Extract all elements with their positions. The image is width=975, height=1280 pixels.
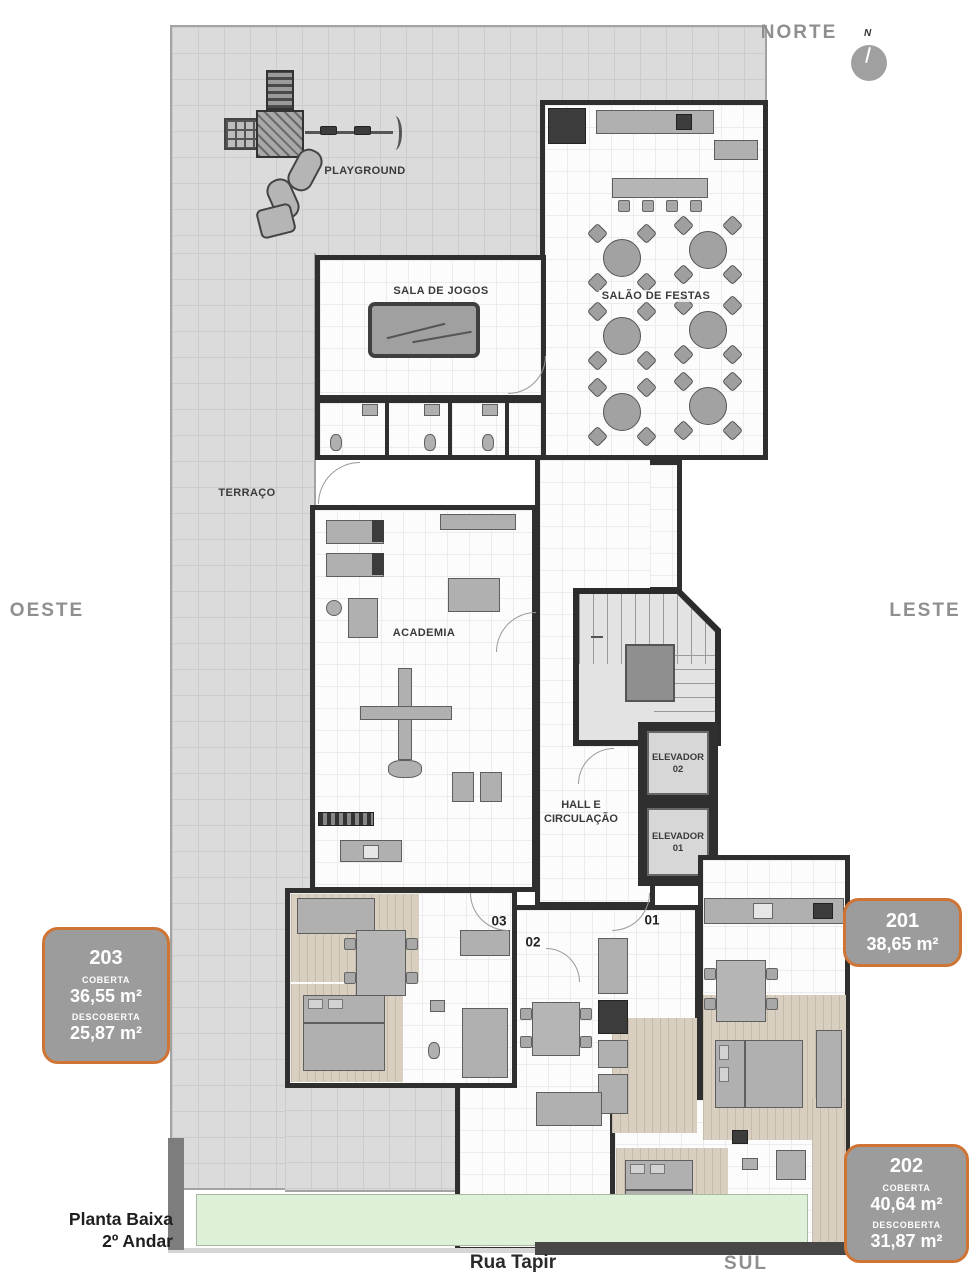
gym-machine	[348, 598, 378, 638]
unit-01-number: 01	[644, 913, 659, 928]
sink	[424, 404, 440, 416]
kitchen-cabinet	[462, 1008, 508, 1078]
weight-rack	[440, 514, 516, 530]
toilet	[482, 434, 494, 451]
dining-table	[356, 930, 406, 996]
badge-203-uncovered-area: 25,87 m²	[45, 1023, 167, 1044]
playground-swing-bar	[305, 131, 393, 134]
hall-label: HALL E CIRCULAÇÃO	[544, 798, 618, 826]
banquet-table	[678, 376, 738, 436]
bed	[303, 995, 385, 1071]
badge-unit-202: 202 COBERTA 40,64 m² DESCOBERTA 31,87 m²	[844, 1144, 969, 1263]
restroom-divider	[385, 400, 389, 456]
kitchen-counter	[704, 898, 844, 924]
elevator-02-label: ELEVADOR 02	[652, 752, 704, 776]
floor-plan-canvas: PLAYGROUND SALÃO DE FESTAS SALA DE JOGOS…	[0, 0, 975, 1280]
unit-02-number: 02	[525, 935, 540, 950]
sink	[362, 404, 378, 416]
badge-202-number: 202	[847, 1155, 966, 1178]
banquet-table	[678, 220, 738, 280]
sofa	[536, 1092, 602, 1126]
sofa	[816, 1030, 842, 1108]
billiard-table	[368, 302, 480, 358]
badge-202-uncovered-label: DESCOBERTA	[847, 1220, 966, 1230]
direction-north: NORTE	[761, 22, 838, 44]
street-name: Rua Tapir	[470, 1252, 556, 1274]
toilet	[330, 434, 342, 451]
badge-203-number: 203	[45, 947, 167, 970]
exercise-mat	[452, 772, 474, 802]
badge-202-uncovered-area: 31,87 m²	[847, 1231, 966, 1252]
bench-press	[448, 578, 500, 612]
gym-label: ACADEMIA	[393, 627, 455, 639]
toilet	[428, 1042, 440, 1059]
compass-n-label: N	[864, 28, 871, 39]
badge-203-uncovered-label: DESCOBERTA	[45, 1012, 167, 1022]
treadmill	[326, 520, 384, 544]
playground-swing-frame	[388, 116, 402, 150]
washing-machine	[732, 1130, 748, 1144]
playground-tower	[266, 70, 294, 110]
badge-201-number: 201	[846, 910, 959, 933]
plan-title-line2: 2º Andar	[18, 1230, 173, 1252]
exercise-mat	[480, 772, 502, 802]
banquet-table	[678, 300, 738, 360]
compass-rose-icon	[851, 45, 887, 81]
corridor-east	[650, 460, 682, 592]
games-room-label: SALA DE JOGOS	[393, 285, 488, 297]
unit-03-number: 03	[491, 914, 506, 929]
direction-east: LESTE	[889, 600, 960, 622]
badge-unit-201: 201 38,65 m²	[843, 898, 962, 967]
direction-south: SUL	[724, 1253, 768, 1275]
apartment-202-hall-floor	[812, 1098, 846, 1250]
party-room-tables	[540, 100, 768, 460]
restroom-divider	[505, 400, 509, 456]
restroom-divider	[448, 400, 452, 456]
kitchen-counter	[598, 938, 628, 994]
sofa	[297, 898, 375, 934]
gym-seat	[388, 760, 422, 778]
terrace-label: TERRAÇO	[218, 487, 275, 499]
kitchen-sink	[598, 1040, 628, 1068]
direction-west: OESTE	[10, 600, 84, 622]
garden-strip	[196, 1194, 808, 1246]
sink	[482, 404, 498, 416]
sink	[742, 1158, 758, 1170]
treadmill	[326, 553, 384, 577]
sink	[430, 1000, 445, 1012]
plan-title: Planta Baixa 2º Andar	[18, 1208, 173, 1252]
kitchen-counter	[460, 930, 510, 956]
dumbbell-rack	[318, 812, 374, 826]
playground-label: PLAYGROUND	[324, 165, 405, 177]
shower	[776, 1150, 806, 1180]
plan-title-line1: Planta Baixa	[18, 1208, 173, 1230]
stove	[598, 1000, 628, 1034]
badge-202-covered-area: 40,64 m²	[847, 1194, 966, 1215]
exercise-bike	[326, 600, 342, 616]
bed	[715, 1040, 803, 1108]
refrigerator	[598, 1074, 628, 1114]
multi-station-horizontal	[360, 706, 452, 720]
dining-table	[532, 1002, 580, 1056]
south-wall	[535, 1242, 850, 1255]
badge-203-covered-label: COBERTA	[45, 975, 167, 985]
playground-ladder	[224, 118, 258, 150]
banquet-table	[592, 306, 652, 366]
playground-swing-seat	[354, 126, 371, 135]
badge-201-area: 38,65 m²	[846, 934, 959, 955]
banquet-table	[592, 382, 652, 442]
elevator-01-label: ELEVADOR 01	[652, 831, 704, 855]
badge-203-covered-area: 36,55 m²	[45, 986, 167, 1007]
badge-unit-203: 203 COBERTA 36,55 m² DESCOBERTA 25,87 m²	[42, 927, 170, 1064]
banquet-table	[592, 228, 652, 288]
playground-platform	[256, 110, 304, 158]
toilet	[424, 434, 436, 451]
dining-table	[716, 960, 766, 1022]
party-room-label: SALÃO DE FESTAS	[599, 290, 713, 302]
badge-202-covered-label: COBERTA	[847, 1183, 966, 1193]
playground-swing-seat	[320, 126, 337, 135]
gym-counter	[340, 840, 402, 862]
door-arc-terrace	[318, 462, 360, 504]
